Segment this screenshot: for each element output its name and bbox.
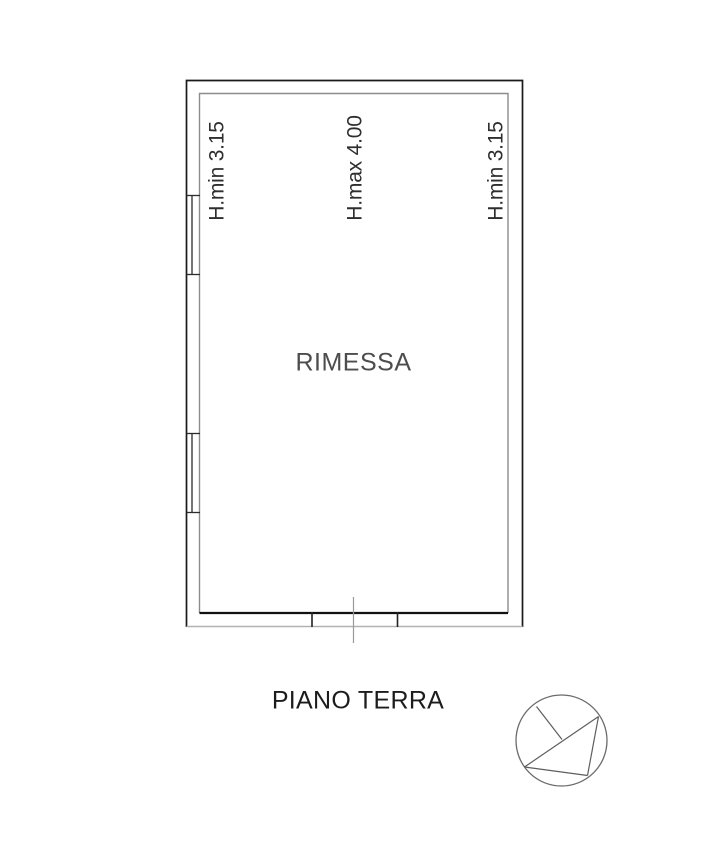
garage-door-opening [312,597,398,643]
room-label: RIMESSA [295,351,411,376]
north-arrow-base [525,767,588,776]
floor-plan-page: H.min 3.15 H.max 4.00 H.min 3.15 RIMESSA… [0,0,728,852]
height-label-center: H.max 4.00 [345,115,366,220]
height-label-left: H.min 3.15 [206,121,227,221]
north-arrow-icon [516,695,607,786]
window-1 [187,196,201,275]
north-arrow-diagonal [525,717,599,768]
north-arrow-side [588,717,599,776]
floor-caption: PIANO TERRA [272,689,444,714]
north-arrow-needle [537,707,563,740]
window-2 [187,434,201,513]
height-label-right: H.min 3.15 [486,121,507,221]
